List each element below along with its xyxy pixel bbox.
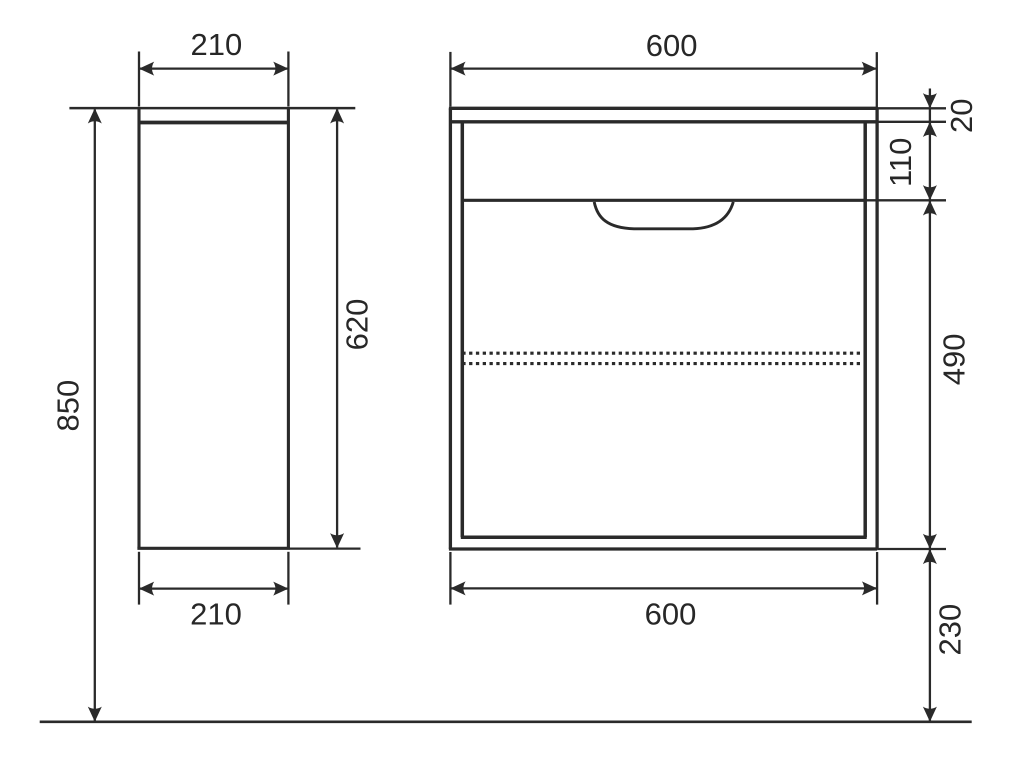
svg-text:620: 620 [340,299,375,351]
svg-text:850: 850 [50,380,85,432]
svg-text:210: 210 [191,27,243,62]
svg-text:230: 230 [932,604,967,656]
svg-text:600: 600 [645,596,697,631]
svg-text:20: 20 [944,98,979,132]
svg-text:110: 110 [883,138,918,187]
svg-text:600: 600 [646,28,698,63]
svg-text:490: 490 [936,334,971,386]
svg-text:210: 210 [190,597,242,632]
